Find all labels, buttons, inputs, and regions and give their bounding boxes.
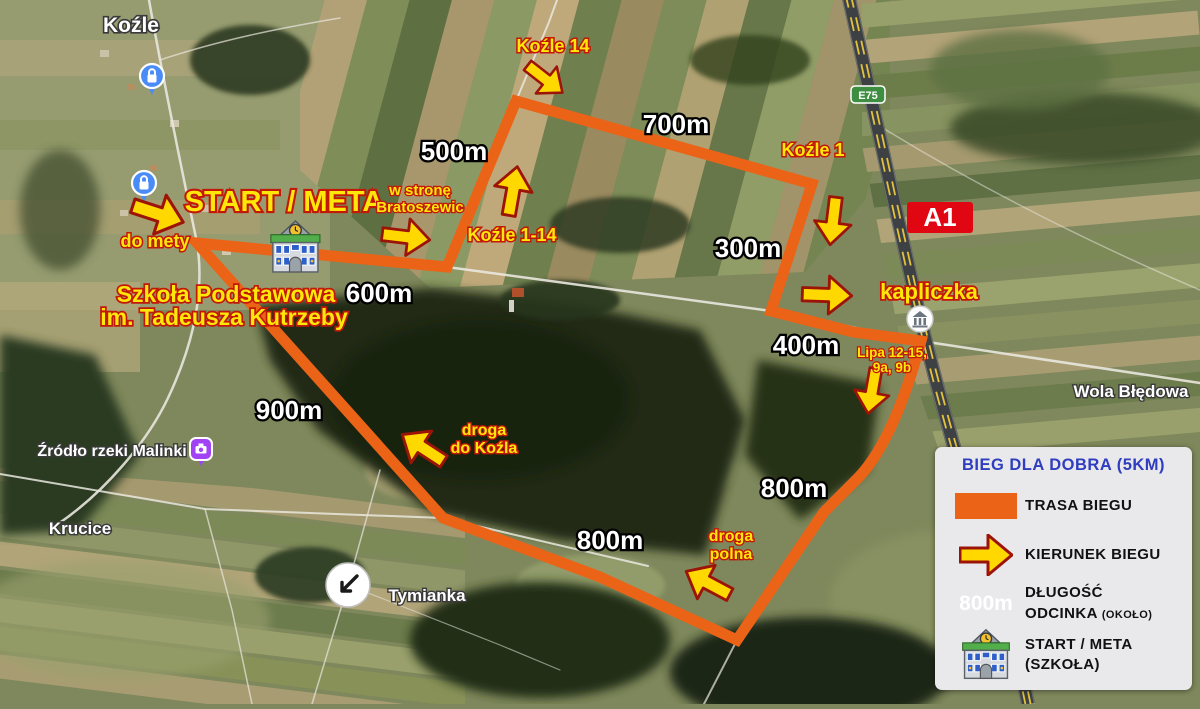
route-color-swatch — [955, 493, 1017, 519]
note-droga-kozla-line2: do Koźla — [451, 440, 518, 457]
chapel-poi-icon — [907, 306, 933, 332]
note-droga-polna-line2: polna — [710, 546, 753, 563]
note-kozle1: Koźle 1 — [781, 140, 844, 160]
legend-start-line1: START / META — [1025, 636, 1133, 653]
distance-700m: 700m — [643, 109, 710, 139]
distance-sample-label: 800m — [959, 592, 1013, 616]
legend-dlugosc-line2: ODCINKA — [1025, 605, 1097, 622]
distance-300m: 300m — [715, 233, 782, 263]
legend-title: BIEG DLA DOBRA (5KM) — [947, 456, 1180, 475]
place-kozle: Koźle — [103, 14, 159, 37]
legend-dlugosc-suffix: (OKOŁO) — [1102, 609, 1152, 621]
place-krucice: Krucice — [49, 519, 111, 538]
note-kozle114: Koźle 1-14 — [467, 225, 556, 245]
note-w-strone: w stronę — [388, 182, 451, 199]
legend-dlugosc-line1: DŁUGOŚĆ — [1025, 584, 1103, 601]
note-do-mety: do mety — [120, 231, 189, 251]
tymianka-direction-icon — [326, 563, 370, 607]
school-name-line2: im. Tadeusza Kutrzeby — [100, 304, 348, 330]
legend-label-dlugosc: DŁUGOŚĆ ODCINKA (OKOŁO) — [1025, 583, 1152, 624]
distance-900m: 900m — [256, 395, 323, 425]
route-map: E75 A1 Koźle Źródło rzeki Malinki Krucic… — [0, 0, 1200, 704]
legend-label-start: START / META (SZKOŁA) — [1025, 635, 1133, 676]
note-lipa-line1: Lipa 12-15, — [857, 345, 927, 360]
legend-row-trasa: TRASA BIEGU — [947, 482, 1180, 531]
place-zrodlo-rzeki-malinki: Źródło rzeki Malinki — [37, 441, 186, 460]
note-kozle14: Koźle 14 — [516, 36, 589, 56]
a1-badge-label: A1 — [923, 202, 956, 232]
distance-800m-bottom: 800m — [577, 525, 644, 555]
place-tymianka: Tymianka — [388, 586, 466, 605]
note-kapliczka: kapliczka — [880, 279, 979, 304]
legend-row-start: START / META (SZKOŁA) — [947, 628, 1180, 682]
legend-panel: BIEG DLA DOBRA (5KM) TRASA BIEGU KIERUNE… — [935, 447, 1192, 690]
legend-start-line2: (SZKOŁA) — [1025, 656, 1100, 673]
legend-label-trasa: TRASA BIEGU — [1025, 496, 1132, 516]
start-meta-label: START / META — [185, 186, 384, 218]
note-bratoszewic: Bratoszewic — [376, 199, 464, 216]
distance-600m: 600m — [346, 278, 413, 308]
e75-badge-label: E75 — [858, 90, 878, 102]
legend-row-kierunek: KIERUNEK BIEGU — [947, 531, 1180, 580]
legend-label-kierunek: KIERUNEK BIEGU — [1025, 545, 1161, 565]
note-droga-kozla-line1: droga — [462, 422, 507, 439]
place-wola-bledowa: Wola Błędowa — [1074, 382, 1189, 401]
school-icon — [958, 628, 1014, 682]
note-lipa-line2: 9a, 9b — [873, 360, 911, 375]
note-droga-polna-line1: droga — [709, 528, 754, 545]
distance-800m-right: 800m — [761, 473, 828, 503]
direction-arrow-icon — [959, 534, 1013, 576]
distance-500m: 500m — [421, 136, 488, 166]
distance-400m: 400m — [773, 330, 840, 360]
legend-row-dlugosc: 800m DŁUGOŚĆ ODCINKA (OKOŁO) — [947, 579, 1180, 628]
